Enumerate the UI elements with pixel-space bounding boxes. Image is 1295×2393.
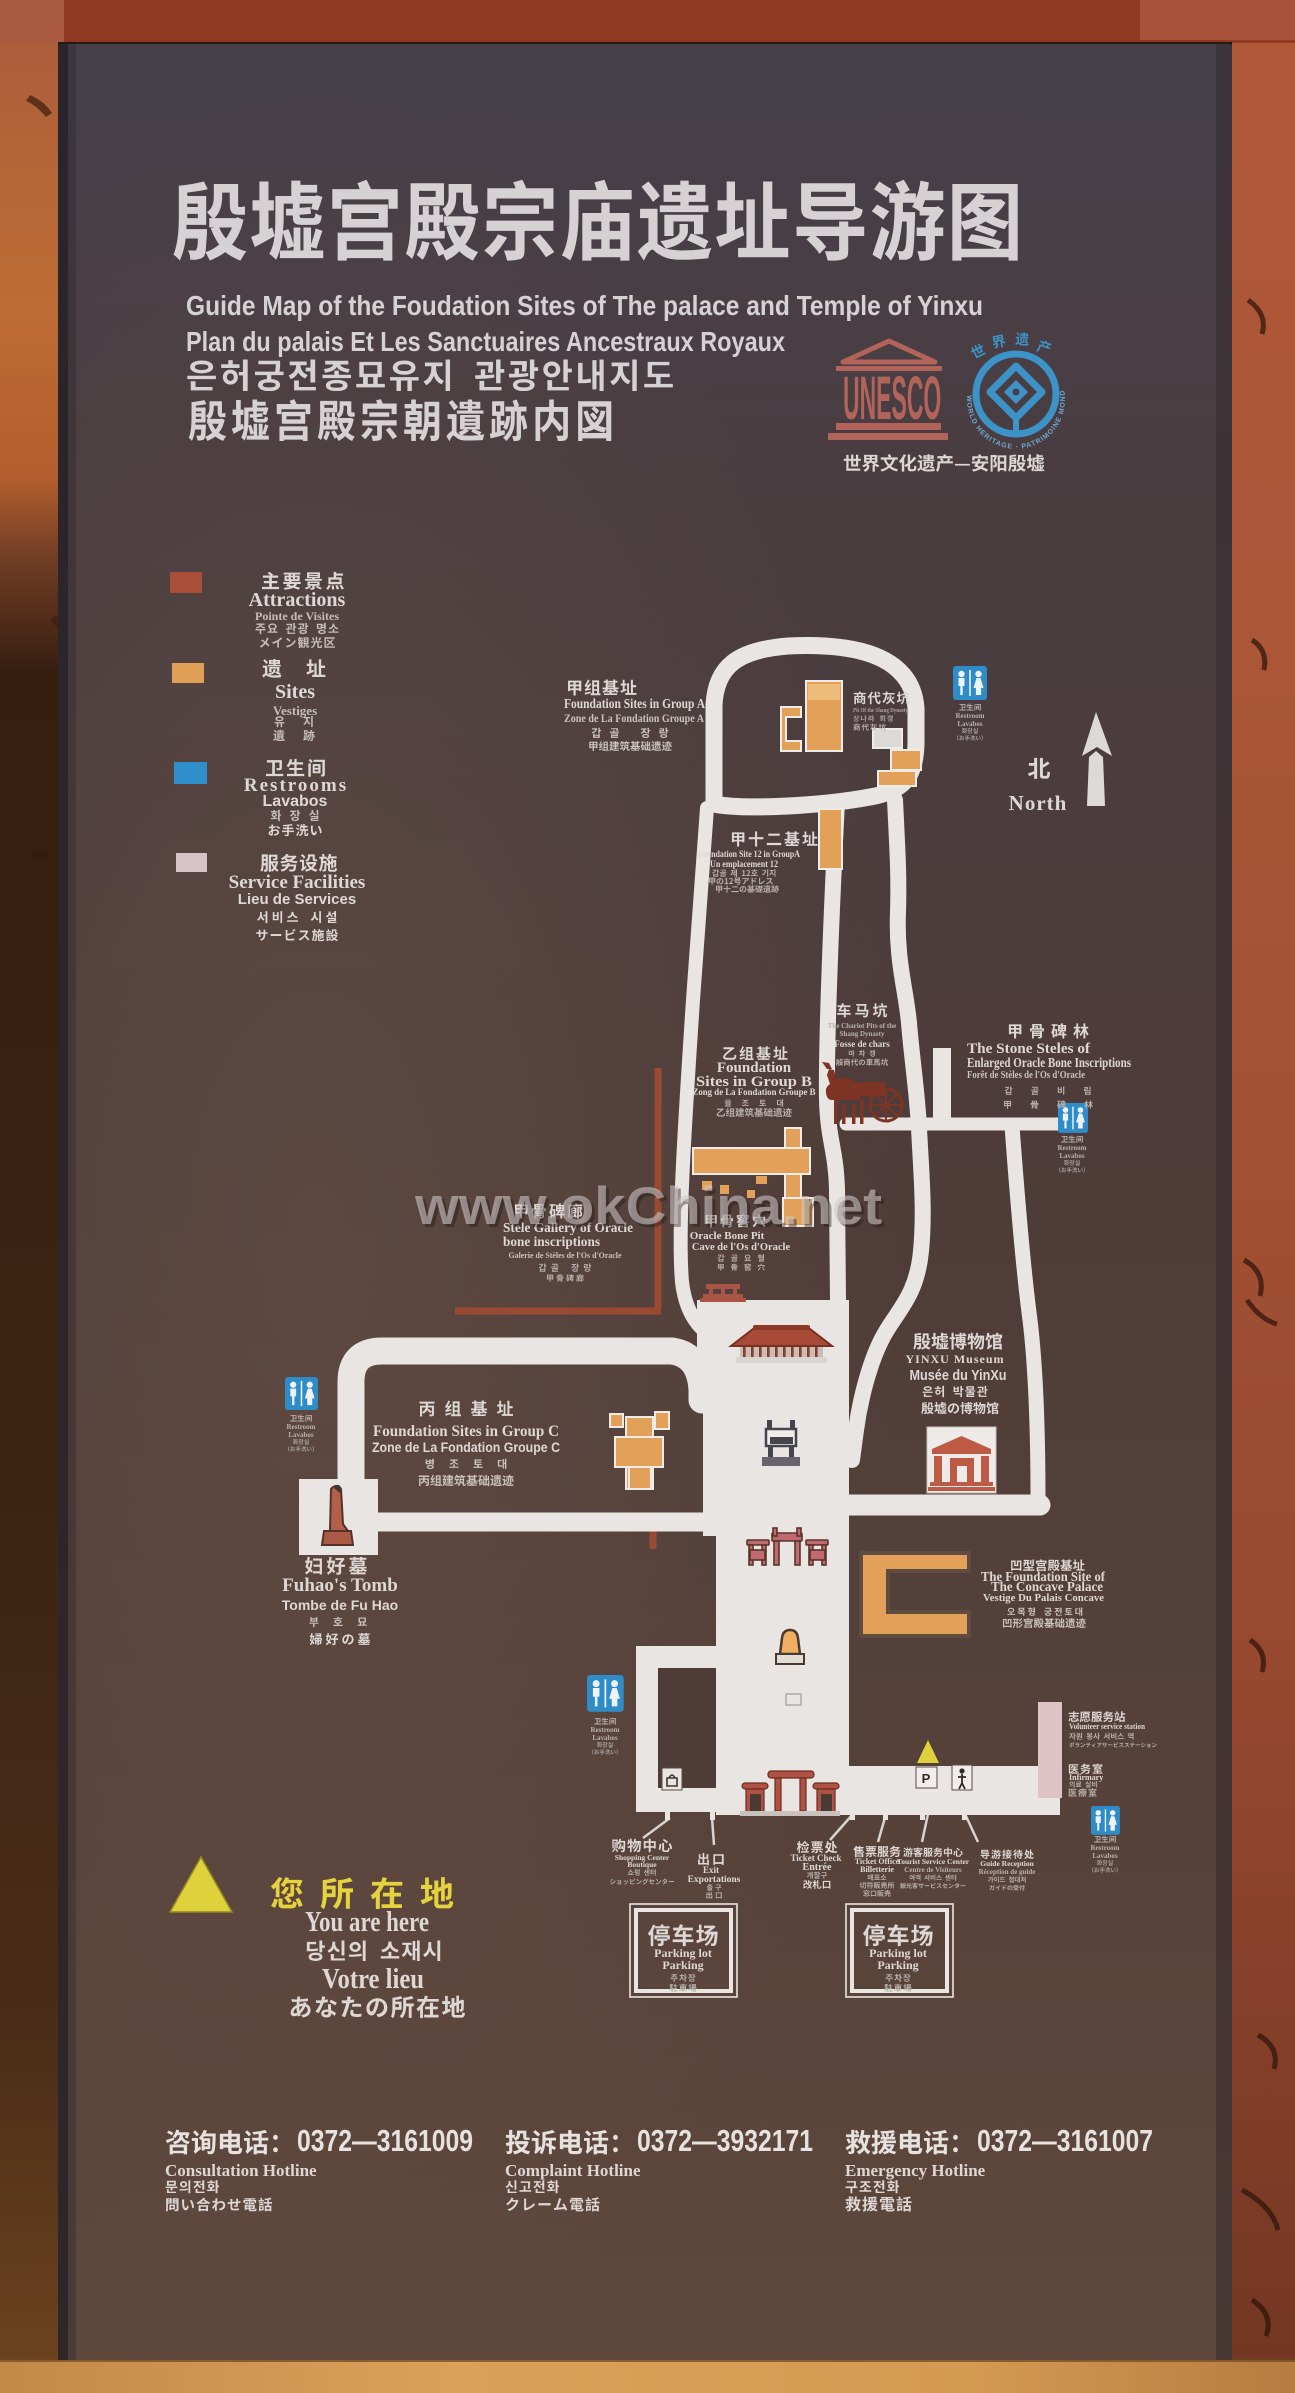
svg-text:Lavabos: Lavabos [263,793,328,810]
svg-text:Parking: Parking [877,1958,918,1972]
svg-text:Lieu de Services: Lieu de Services [238,891,356,908]
svg-text:Lavabos: Lavabos [1059,1152,1085,1160]
svg-text:Guide Reception: Guide Reception [980,1859,1034,1868]
svg-text:Votre lieu: Votre lieu [322,1964,424,1995]
svg-text:You are here: You are here [305,1907,429,1938]
svg-text:Fosse de chars: Fosse de chars [834,1039,890,1049]
svg-text:Boutique: Boutique [627,1860,657,1869]
svg-text:The Chariot Pits of the: The Chariot Pits of the [828,1022,896,1030]
svg-text:Pointe de Visites: Pointe de Visites [255,609,339,623]
svg-text:Foundation Sites in Group C: Foundation Sites in Group C [373,1423,559,1440]
svg-text:Fuhao's Tomb: Fuhao's Tomb [282,1575,398,1596]
svg-text:Exit: Exit [703,1865,719,1875]
svg-text:Volunteer service station: Volunteer service station [1069,1721,1145,1731]
svg-text:Restroom: Restroom [955,712,984,720]
svg-text:Lavabos: Lavabos [288,1431,314,1439]
svg-text:UNESCO: UNESCO [843,364,941,432]
svg-text:Zone de La Fondation Groupe C: Zone de La Fondation Groupe C [372,1440,560,1455]
svg-text:Lavabos: Lavabos [592,1734,618,1742]
svg-text:P: P [922,1771,931,1786]
svg-text:Centre de Visiteurs: Centre de Visiteurs [904,1866,962,1874]
svg-text:Consultation Hotline: Consultation Hotline [165,2161,317,2180]
svg-text:Restroom: Restroom [590,1726,619,1734]
svg-text:Billetterie: Billetterie [860,1865,894,1874]
svg-text:Cave de l'Os d'Oracle: Cave de l'Os d'Oracle [692,1242,791,1253]
svg-text:Emergency Hotline: Emergency Hotline [845,2161,986,2180]
svg-text:YINXU Museum: YINXU Museum [906,1352,1005,1366]
svg-text:Lavabos: Lavabos [1092,1852,1118,1860]
svg-text:Attractions: Attractions [249,589,346,611]
svg-text:The Concave Palace: The Concave Palace [991,1579,1103,1594]
svg-text:Vestige Du Palais Concave: Vestige Du Palais Concave [983,1593,1104,1604]
svg-text:Forêt de Stèles de l'Os d'Orac: Forêt de Stèles de l'Os d'Oracle [967,1070,1085,1081]
svg-text:Complaint Hotline: Complaint Hotline [505,2161,641,2180]
svg-text:Foundation Sites in Group A: Foundation Sites in Group A [564,696,705,711]
svg-text:Zone de La Fondation Groupe: Zone de La Fondation Groupe A [564,713,705,725]
svg-text:Restroom: Restroom [1090,1844,1119,1852]
svg-text:Sites: Sites [275,681,315,703]
svg-text:Plan du palais Et Les Sanctuai: Plan du palais Et Les Sanctuaires Ancest… [186,326,785,357]
svg-text:0372—3161009: 0372—3161009 [297,2123,473,2158]
svg-text:Lavabos: Lavabos [957,720,983,728]
svg-text:Restroom: Restroom [286,1423,315,1431]
svg-text:Infirmary: Infirmary [1069,1773,1103,1782]
svg-text:Exportations: Exportations [688,1875,741,1885]
svg-text:Réception de guide: Réception de guide [979,1868,1036,1876]
svg-text:Shang Dynasty: Shang Dynasty [840,1030,885,1038]
svg-text:Entrée: Entrée [803,1862,832,1873]
svg-text:Service Facilities: Service Facilities [229,872,366,893]
svg-text:North: North [1009,791,1068,815]
svg-text:Tombe de Fu Hao: Tombe de Fu Hao [282,1597,398,1613]
svg-text:Pit Of the Shang Dynasty: Pit Of the Shang Dynasty [853,707,909,714]
svg-text:Restroom: Restroom [1057,1144,1086,1152]
svg-text:Tourist Service Center: Tourist Service Center [897,1857,970,1866]
svg-text:www.okChina.net: www.okChina.net [414,1177,882,1236]
svg-text:Galerie de Stèles de l'Os d'Or: Galerie de Stèles de l'Os d'Oracle [509,1250,622,1260]
svg-text:Vestiges: Vestiges [273,703,317,718]
svg-text:Guide Map of the Foudation Si: Guide Map of the Foudation Sites of The … [186,290,983,321]
svg-text:Enlarged Oracle Bone Inscript: Enlarged Oracle Bone Inscriptions [967,1056,1131,1071]
svg-text:Un emplacement 12: Un emplacement 12 [710,859,778,869]
svg-text:0372—3161007: 0372—3161007 [977,2123,1153,2158]
svg-text:The Stone Steles of: The Stone Steles of [967,1041,1091,1057]
svg-text:0372—3932171: 0372—3932171 [637,2123,813,2158]
svg-text:Zong de La Fondation Groupe B: Zong de La Fondation Groupe B [693,1087,816,1097]
svg-text:Musée du YinXu: Musée du YinXu [910,1367,1007,1384]
svg-text:Parking: Parking [662,1958,703,1972]
